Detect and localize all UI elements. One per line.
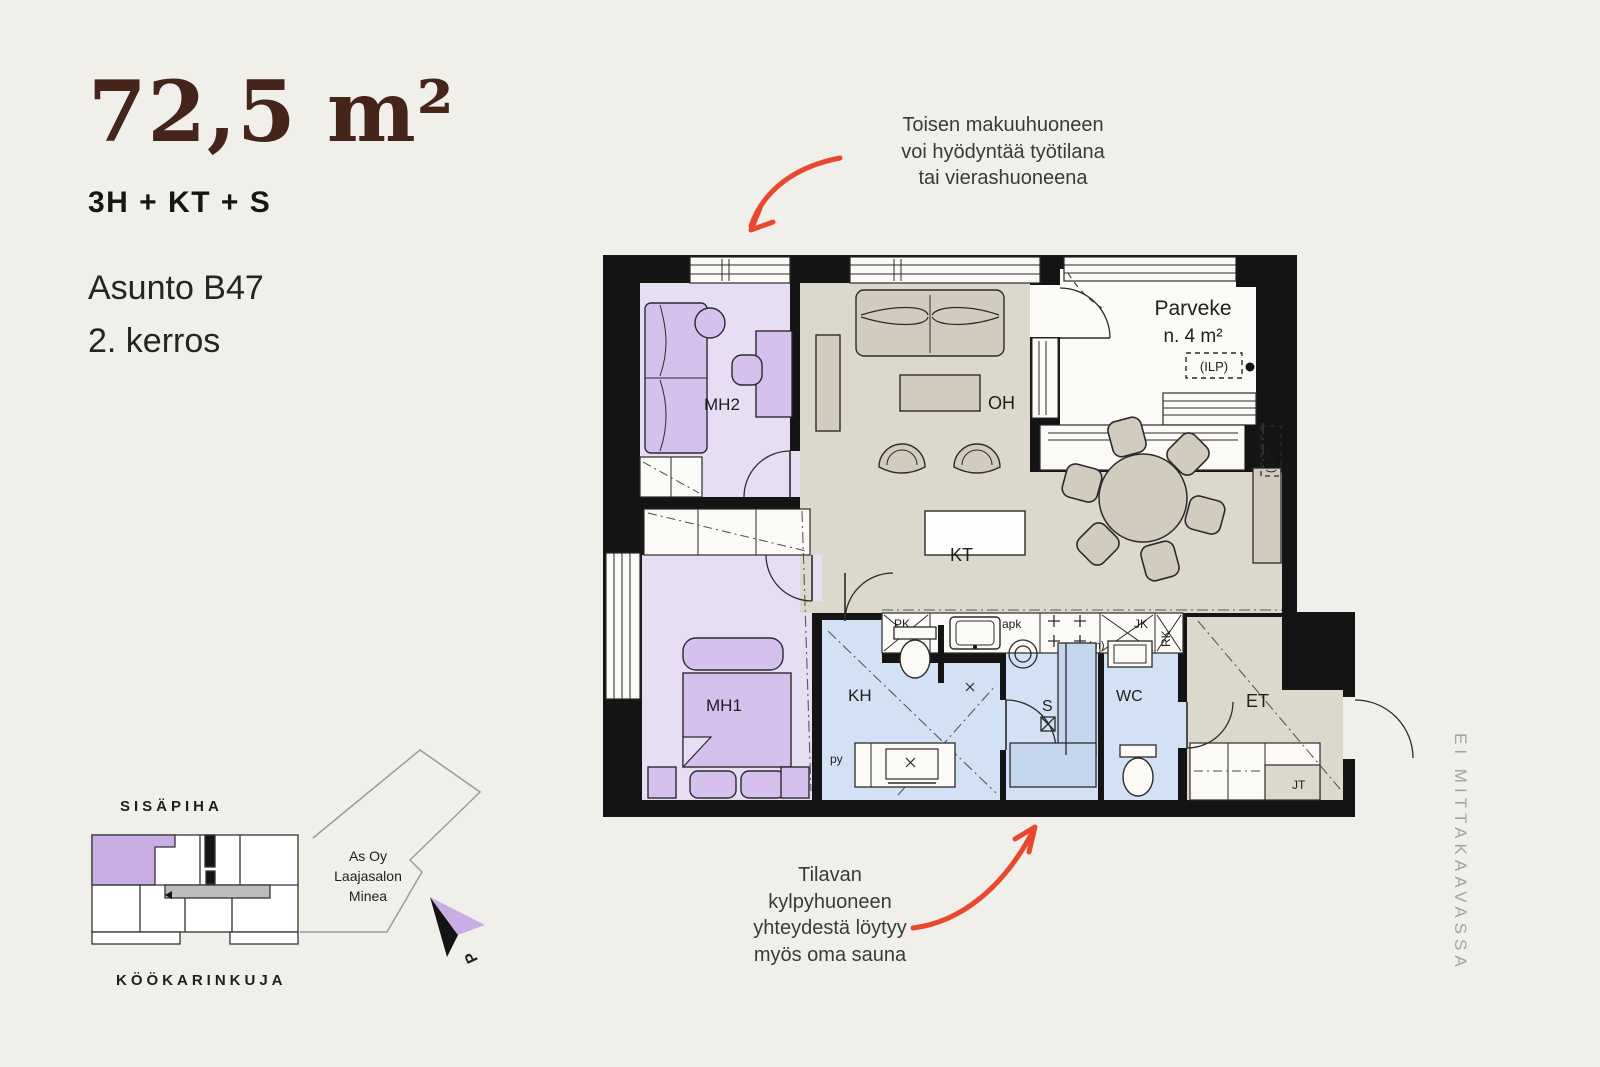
balcony-ilp-label: (ILP) <box>1200 359 1228 374</box>
mh1-label: MH1 <box>706 696 742 715</box>
annotation-line: voi hyödyntää työtilana <box>838 139 1168 166</box>
kt-label: KT <box>950 545 973 565</box>
annotation-line: tai vierashuoneena <box>838 165 1168 192</box>
site-plan: SISÄPIHA As Oy Laajasalon Minea KÖÖKARIN… <box>80 745 500 1015</box>
svg-text:As Oy: As Oy <box>349 848 387 864</box>
py-label: py <box>830 752 843 766</box>
kh-label: KH <box>848 686 872 705</box>
wc-toilet-bowl <box>1123 758 1153 796</box>
jk-label: JK <box>1134 617 1148 631</box>
svg-text:Minea: Minea <box>349 888 387 904</box>
window-mh1-left <box>606 553 640 699</box>
kt-ilp-label: (ILP) <box>1265 449 1277 473</box>
sauna-bench <box>1010 743 1096 787</box>
wardrobe-mh2 <box>640 457 702 497</box>
apartment-number: Asunto B47 <box>88 262 548 315</box>
mh2-side-table <box>695 308 725 338</box>
annotation-second-bedroom: Toisen makuuhuoneen voi hyödyntää työtil… <box>838 112 1168 192</box>
wc-toilet-tank <box>1120 745 1156 757</box>
balcony-area-label: n. 4 m² <box>1163 326 1222 347</box>
window-oh-top <box>850 257 1040 283</box>
annotation-sauna: Tilavan kylpyhuoneen yhteydestä löytyy m… <box>730 862 930 968</box>
not-to-scale-note: EI MITTAKAAVASSA <box>1450 733 1470 1033</box>
floorplan-page: { "page": {"background": "#f0efe9"}, "he… <box>0 0 1600 1067</box>
annotation-line: kylpyhuoneen <box>730 889 930 916</box>
wardrobe-mh1 <box>644 509 810 555</box>
red-arrow-top <box>736 146 856 246</box>
header-block: 72,5 m² 3H + KT + S Asunto B47 2. kerros <box>88 68 548 368</box>
mh1-bed <box>683 673 791 767</box>
et-label: ET <box>1246 691 1269 711</box>
kh-toilet-tank <box>894 627 936 639</box>
svg-text:Laajasalon: Laajasalon <box>334 868 402 884</box>
balcony-door-opening <box>1030 285 1060 337</box>
north-arrow: P <box>430 897 485 966</box>
building-wing-outline <box>300 750 480 932</box>
mh1-bench <box>690 771 736 798</box>
oh-tv-bench <box>816 335 840 431</box>
dining-table <box>1099 454 1187 542</box>
street-label-top: SISÄPIHA <box>120 798 223 815</box>
oh-coffee-table <box>900 375 980 411</box>
oh-label: OH <box>988 393 1015 413</box>
mh2-chair <box>732 355 762 385</box>
balcony-label: Parveke <box>1154 297 1231 320</box>
mh1-bench <box>741 771 785 798</box>
apartment-layout-code: 3H + KT + S <box>88 186 548 220</box>
wardrobe-et: JT <box>1190 743 1320 800</box>
floorplan-drawing: Parveke n. 4 m² (ILP) <box>598 243 1450 843</box>
apk-label: apk <box>1002 617 1022 631</box>
rk-label: RK <box>1159 630 1173 647</box>
annotation-line: myös oma sauna <box>730 942 930 969</box>
street-label-bottom: KÖÖKARINKUJA <box>116 972 287 989</box>
annotation-line: yhteydestä löytyy <box>730 915 930 942</box>
sauna-label: S <box>1042 698 1053 715</box>
balcony-dot <box>1246 363 1255 372</box>
north-label: P <box>462 949 482 966</box>
balcony-side-window <box>1032 338 1058 418</box>
kh-partition <box>938 625 944 683</box>
mh1-nightstand <box>648 767 676 798</box>
building-main-block <box>92 835 298 944</box>
kh-toilet-bowl <box>900 640 930 678</box>
sauna-bench <box>1058 643 1096 755</box>
housing-company-name: As Oy Laajasalon Minea <box>334 848 402 904</box>
balcony-railing <box>1163 393 1256 425</box>
window-mh2-top <box>690 257 790 283</box>
apartment-floor: 2. kerros <box>88 315 548 368</box>
kt-island <box>925 511 1025 555</box>
balcony-glazing-top <box>1064 257 1236 281</box>
apartment-area-title: 72,5 m² <box>88 68 548 156</box>
mh1-nightstand <box>781 767 809 798</box>
annotation-line: Tilavan <box>730 862 930 889</box>
kt-tall-cabinet <box>1253 468 1281 563</box>
apartment-identity: Asunto B47 2. kerros <box>88 262 548 367</box>
mh2-label: MH2 <box>704 395 740 414</box>
mh1-headboard <box>683 638 783 670</box>
annotation-line: Toisen makuuhuoneen <box>838 112 1168 139</box>
jt-label: JT <box>1292 778 1306 792</box>
wc-label: WC <box>1116 688 1143 705</box>
